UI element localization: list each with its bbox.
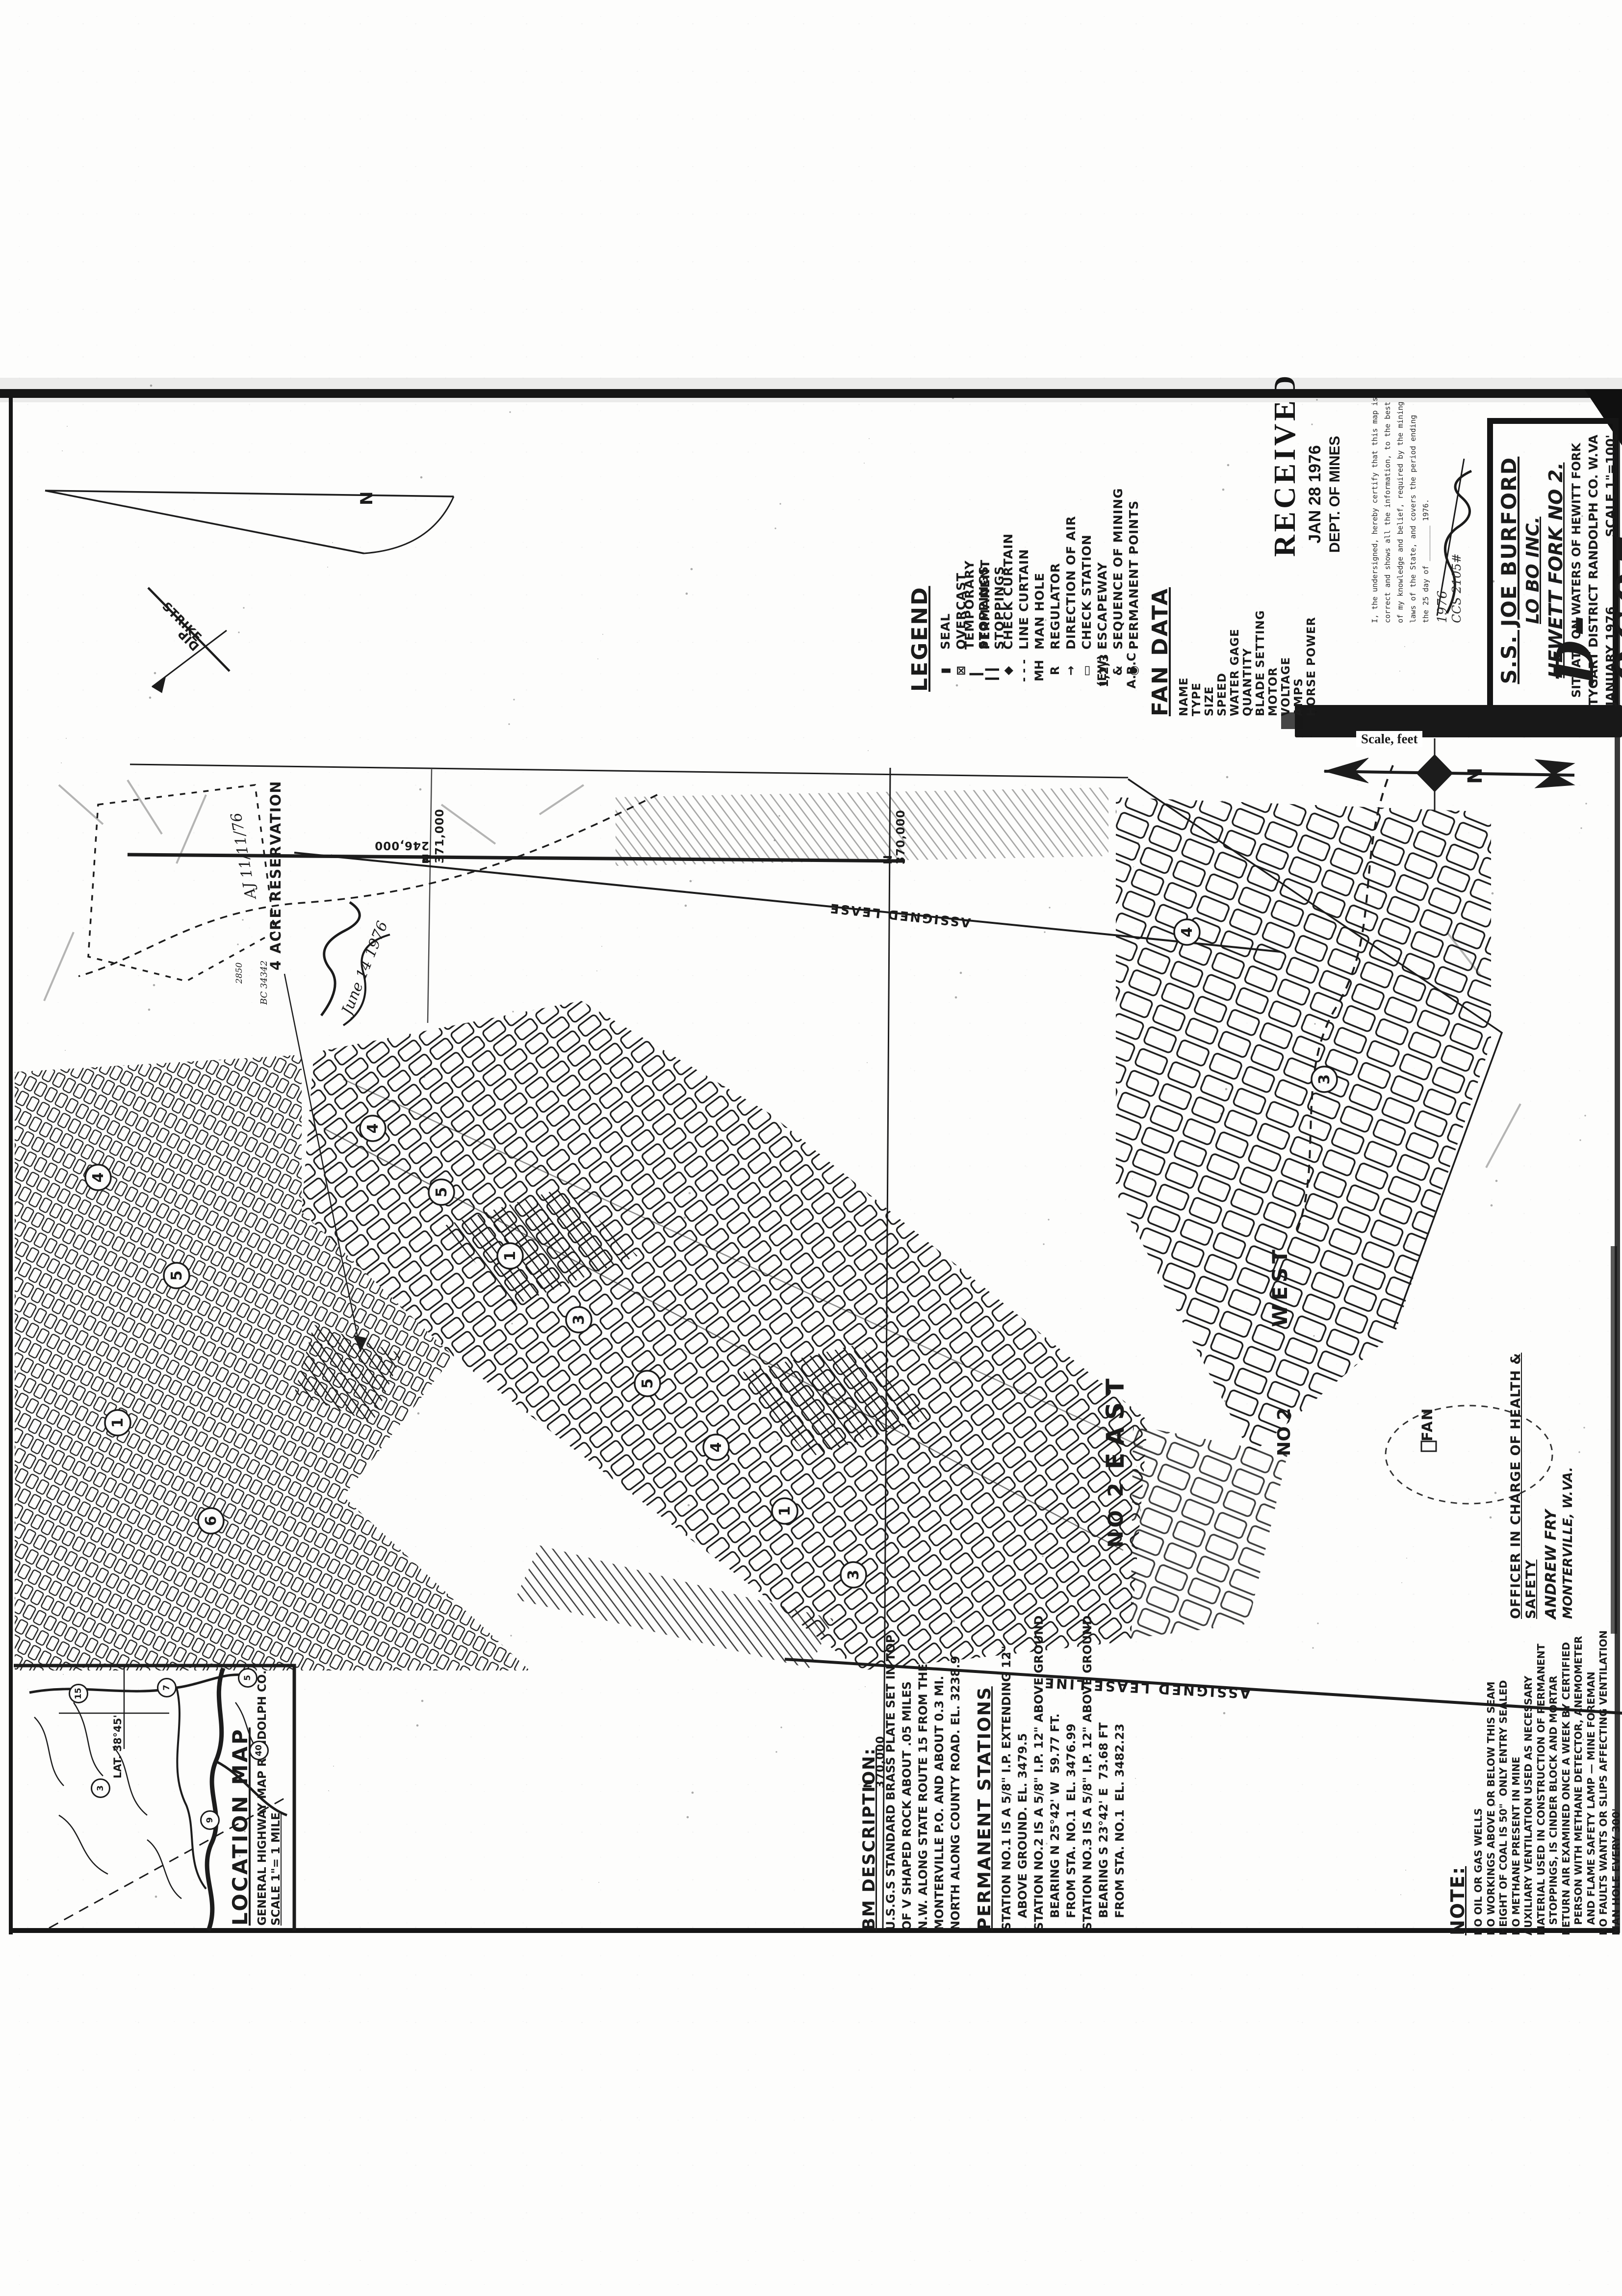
certification-number: CCS 2105# [1450,427,1464,623]
declination-north-letter: N [357,483,378,505]
note-block: NOTE: NO OIL OR GAS WELLSNO WORKINGS ABO… [1447,1634,1621,1935]
certification-block: I, the undersigned, hereby certify that … [1368,427,1471,623]
legend-item: R REGULATOR [1047,486,1063,692]
certification-line: of my knowledge and belief, required by … [1394,427,1407,623]
legend-item-label: DIRECTION OF AIR [1064,516,1078,650]
note-line: NO FAULTS WANTS OR SLIPS AFFECTING VENTI… [1597,1634,1610,1935]
bm-description-line: OF V SHAPED ROCK ABOUT .05 MILES [899,1656,915,1931]
permanent-station-line: BEARING S 23°42' E 73.68 FT [1096,1656,1112,1931]
legend-item-label: SEQUENCE OF MINING [1111,488,1125,650]
entry-no2-west-label: NO 2 [1274,1392,1299,1456]
svg-text:1: 1 [109,1418,127,1428]
legend-item-label: SEAL [938,613,953,650]
certification-line: I, the undersigned, hereby certify that … [1368,427,1381,623]
legend-item: ▮ SEAL [937,486,953,692]
legend-symbol-icon: ▭ [1080,650,1093,692]
legend-panel: LEGEND ▮ SEAL ⊠ OVERCAST ▎ TEMPORARY STO… [907,486,1153,692]
legend-symbol-icon: ◉ [1127,650,1140,692]
reservation-label: 4 ACRE RESERVATION [267,759,289,970]
note-line: STOPPINGS, IS CINDER BLOCK AND MORTAR [1547,1634,1560,1935]
permanent-stations-title: PERMANENT STATIONS [975,1656,995,1931]
bm-description-lines: U.S.G.S STANDARD BRASS PLATE SET IN TOPO… [883,1656,964,1931]
svg-text:3: 3 [1316,1074,1333,1085]
fan-data-item: WATER GAGE [1229,510,1241,716]
fan-data-item: QUANTITY [1241,510,1254,716]
certification-line: the 25 day of ________ 1976. [1419,427,1432,623]
bm-description-line: MONTERVILLE P.O. AND ABOUT 0.3 MI. [931,1656,948,1931]
route-badge: 15 [69,1684,88,1703]
note-line: RETURN AIR EXAMINED ONCE A WEEK BY CERTI… [1560,1634,1573,1935]
fan-data-item: NAME [1178,510,1190,716]
svg-text:4: 4 [90,1173,107,1183]
legend-item-label: MAN HOLE [1032,573,1047,650]
svg-text:5: 5 [433,1187,450,1198]
svg-text:5: 5 [639,1379,656,1389]
north-arrow [1324,738,1574,812]
svg-text:5: 5 [168,1271,185,1281]
fan-data-title: FAN DATA [1148,510,1173,716]
officer-place: MONTERVILLE, W.VA. [1561,1317,1575,1619]
svg-text:4: 4 [1179,927,1196,938]
svg-text:6: 6 [203,1516,220,1526]
note-line: NO OIL OR GAS WELLS [1472,1634,1485,1935]
svg-text:3: 3 [845,1570,862,1580]
received-stamp-word: RECEIVED [1268,432,1303,557]
received-stamp-dept: DEPT. OF MINES [1327,432,1343,557]
legend-item-label: PERMANENT POINTS [1127,500,1141,650]
north-arrow-letter: N [1464,759,1487,784]
certification-year-handwritten: 1976 [1435,427,1450,623]
legend-item: → DIRECTION OF AIR [1063,486,1079,692]
bm-description-line: NORTH ALONG COUNTY ROAD. EL. 3238.9 [948,1656,964,1931]
fan-data-item: BLADE SETTING [1254,510,1267,716]
latitude-label: LAT. 38°45' [112,1693,129,1778]
route-badge: 9 [200,1810,220,1830]
legend-symbol-icon: ⊠ [954,650,968,692]
legend-item-label: CHECK CURTAIN [1001,533,1015,650]
handwritten-bc-number: BC 34342 [259,946,272,1005]
note-line: HEIGHT OF COAL IS 50" ONLY ENTRY SEALED [1497,1634,1510,1935]
note-line: AUXILIARY VENTILATION USED AS NECESSARY [1522,1634,1535,1935]
company-name: S.S. JOE BURFORD [1497,432,1521,709]
officer-block: OFFICER IN CHARGE OF HEALTH & SAFETY AND… [1508,1317,1579,1619]
handwritten-elevation: 2850 [234,949,246,984]
map-scale: SCALE 1"=100' [1603,435,1618,537]
note-line: MATERIAL USED IN CONSTRUCTION OF PERMANE… [1535,1634,1548,1935]
mine-workings [15,787,1491,1670]
received-stamp-date: JAN 28 1976 [1306,432,1325,557]
route-badge: 5 [238,1668,257,1688]
fan-data-item: TYPE [1190,510,1203,716]
bm-description-title: BM DESCRIPTION: [859,1656,879,1931]
scanned-mine-map-sheet: 45135413451643 LEGEND ▮ SEAL ⊠ OVERCAST … [0,0,1622,2296]
route-badge: 40 [249,1741,269,1760]
svg-text:1: 1 [502,1251,519,1261]
certification-line: laws of the State, and covers the period… [1407,427,1419,623]
note-line: NO WORKINGS ABOVE OR BELOW THIS SEAM [1485,1634,1498,1935]
legend-symbol-icon: ▮ [938,650,952,692]
received-stamp: RECEIVED JAN 28 1976 DEPT. OF MINES [1268,432,1366,557]
note-title: NOTE: [1447,1634,1468,1935]
legend-symbol-icon: ▎ [970,650,983,692]
svg-text:3: 3 [570,1315,588,1325]
note-line: PERSON WITH METHANE DETECTOR, ANEMOMETER [1572,1634,1585,1935]
note-lines: NO OIL OR GAS WELLSNO WORKINGS ABOVE OR … [1472,1634,1622,1935]
location-map-caption: LOCATION MAP GENERAL HIGHWAY MAP RANDOLP… [228,1663,289,1926]
legend-item-label: ESCAPEWAY [1095,562,1109,650]
entry-west-label: WEST [1268,1236,1295,1327]
legend-item-label: LINE CURTAIN [1017,549,1031,650]
svg-text:1: 1 [776,1506,794,1516]
legend-item: ▎▎ PERMANENT STOPPINGS [984,486,1000,692]
declination-diagram [45,491,454,553]
certification-lines: I, the undersigned, hereby certify that … [1368,427,1432,623]
note-line: NO METHANE PRESENT IN MINE [1510,1634,1523,1935]
officer-name: ANDREW FRY [1543,1317,1560,1619]
legend-symbol-icon: R [1048,650,1062,692]
scale-bar [1281,705,1622,737]
grid-label-e246: E 246,000 [363,852,429,864]
legend-symbol-icon: ◆ [1001,650,1015,692]
grid-label-n370-top: N 370,000 [882,798,897,864]
scale-bar-caption: Scale, feet [1356,731,1422,747]
legend-items: ▮ SEAL ⊠ OVERCAST ▎ TEMPORARY STOPPINGS … [937,486,1141,692]
legend-item: ◉ PERMANENT POINTS [1126,486,1141,692]
fan-data-item: SIZE [1203,510,1216,716]
legend-symbol-icon: → [1064,650,1078,692]
bm-description-line: U.S.G.S STANDARD BRASS PLATE SET IN TOP [883,1656,899,1931]
entry-no2-label: NO 2 [1104,1482,1133,1548]
location-map-subtitle: GENERAL HIGHWAY MAP RANDOLPH CO. [256,1663,269,1926]
officer-title: OFFICER IN CHARGE OF HEALTH & SAFETY [1508,1317,1539,1619]
legend-symbol-icon: MH [1032,650,1046,692]
route-badge: 7 [157,1678,177,1697]
route-badge: 3 [91,1778,110,1798]
legend-item-label: REGULATOR [1048,563,1062,650]
legend-symbol-icon: ▎▎ [985,650,999,692]
svg-text:4: 4 [364,1123,382,1134]
location-map-title: LOCATION MAP [228,1663,252,1926]
note-line: AND FLAME SAFETY LAMP — MINE FOREMAN [1585,1634,1598,1935]
legend-item: ▭ CHECK STATION [1079,486,1094,692]
svg-text:4: 4 [708,1442,725,1453]
permanent-station-line: BEARING N 25°42' W 59.77 FT. [1047,1656,1063,1931]
fan-label: FAN [1419,1392,1439,1441]
fan-data-item: SPEED [1216,510,1229,716]
legend-title: LEGEND [907,486,932,692]
permanent-station-line: FROM STA. NO.1 EL. 3482.23 [1112,1656,1128,1931]
legend-item: MH MAN HOLE [1031,486,1047,692]
legend-item: 1,2,3 & A.B.C SEQUENCE OF MINING [1110,486,1126,692]
bm-description-line: N.W. ALONG STATE ROUTE 15 FROM THE [915,1656,931,1931]
drawing-number: D-9605 [1545,532,1609,684]
legend-item-label: CHECK STATION [1080,534,1094,650]
permanent-station-line: STATION NO.2 IS A 5/8" I.P. 12" ABOVE GR… [1031,1656,1047,1931]
certification-line: correct and shows all the information, t… [1381,427,1394,623]
permanent-station-line: ABOVE GROUND. EL. 3479.5 [1015,1656,1031,1931]
permanent-station-line: FROM STA. NO.1 EL. 3476.99 [1063,1656,1080,1931]
legend-symbol-icon: - - - [1017,650,1030,692]
permanent-station-line: STATION NO.1 IS A 5/8" I.P. EXTENDING 12… [999,1656,1015,1931]
note-line: MAN HOLE EVERY 300' [1610,1634,1622,1935]
permanent-stations-lines: STATION NO.1 IS A 5/8" I.P. EXTENDING 12… [999,1656,1128,1931]
location-map-scale: SCALE 1"= 1 MILE [270,1663,283,1926]
map-artwork: 45135413451643 [0,0,1622,2296]
operator-name: LO BO INC. [1523,432,1543,709]
legend-item: - - - LINE CURTAIN [1016,486,1031,692]
bm-description-block: BM DESCRIPTION: U.S.G.S STANDARD BRASS P… [859,1656,1141,1931]
entry-east-label: EAST [1101,1366,1135,1469]
permanent-station-line: STATION NO.3 IS A 5/8" I.P. 12" ABOVE GR… [1080,1656,1096,1931]
